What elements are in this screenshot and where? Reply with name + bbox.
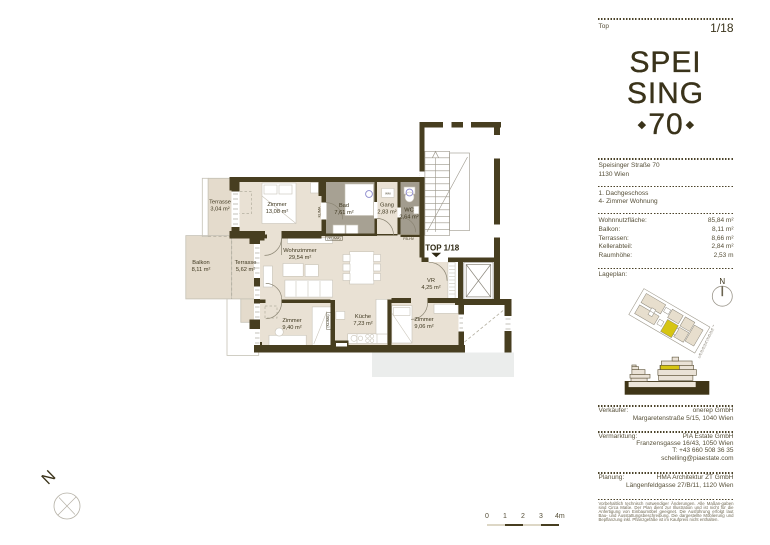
svg-text:5,62 m²: 5,62 m² (236, 267, 255, 273)
svg-text:VR: VR (427, 278, 435, 284)
svg-text:4,25 m²: 4,25 m² (421, 285, 440, 291)
svg-text:7,61 m²: 7,61 m² (334, 210, 353, 216)
svg-text:9,06 m²: 9,06 m² (414, 324, 433, 330)
svg-text:Bad: Bad (339, 203, 349, 209)
svg-text:2,83 m²: 2,83 m² (377, 210, 396, 216)
svg-text:Zimmer: Zimmer (267, 202, 286, 208)
svg-text:Zimmer: Zimmer (414, 317, 433, 323)
svg-text:WC: WC (404, 208, 413, 214)
svg-text:9,40 m²: 9,40 m² (282, 325, 301, 331)
svg-text:Gang: Gang (380, 203, 394, 209)
svg-text:TOP 1/18: TOP 1/18 (425, 244, 460, 253)
svg-text:Küche: Küche (355, 314, 371, 320)
svg-text:(KLIMA): (KLIMA) (327, 237, 340, 241)
svg-text:29,54 m²: 29,54 m² (289, 255, 312, 261)
svg-text:KLIMA: KLIMA (318, 206, 322, 217)
svg-text:Balkon: Balkon (192, 260, 209, 266)
svg-text:Terrasse: Terrasse (235, 260, 257, 266)
svg-text:WM: WM (385, 192, 391, 196)
svg-text:13,08 m²: 13,08 m² (266, 209, 289, 215)
svg-text:8,11 m²: 8,11 m² (192, 267, 211, 273)
svg-text:3,04 m²: 3,04 m² (210, 207, 229, 213)
svg-text:FB-HV: FB-HV (403, 237, 414, 241)
svg-text:Terrasse: Terrasse (209, 200, 231, 206)
svg-text:7,23 m²: 7,23 m² (353, 321, 372, 327)
svg-text:Wohnzimmer: Wohnzimmer (283, 248, 317, 254)
svg-text:2,64 m²: 2,64 m² (399, 215, 418, 221)
svg-text:Zimmer: Zimmer (282, 318, 301, 324)
